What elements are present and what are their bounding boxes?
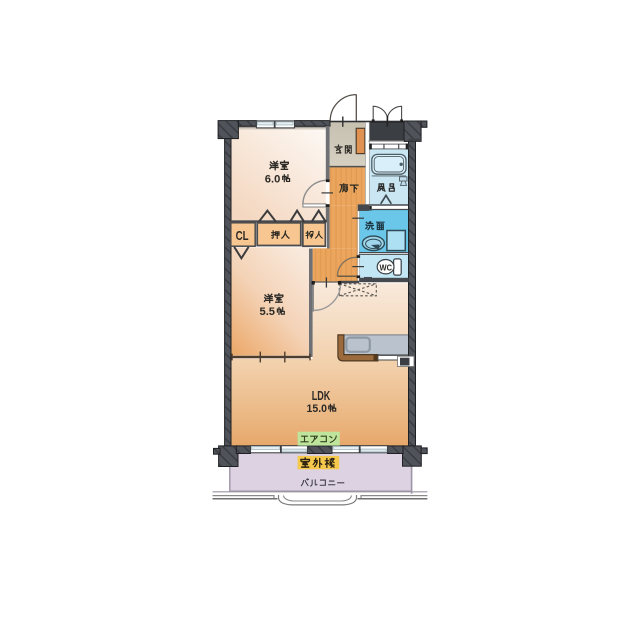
svg-text:WC: WC — [380, 263, 393, 272]
svg-text:6.0: 6.0 — [265, 174, 281, 186]
svg-text:5.5: 5.5 — [260, 306, 276, 318]
svg-text:15.0: 15.0 — [307, 403, 328, 415]
svg-text:LDK: LDK — [312, 388, 331, 403]
svg-text:CL: CL — [236, 228, 249, 243]
